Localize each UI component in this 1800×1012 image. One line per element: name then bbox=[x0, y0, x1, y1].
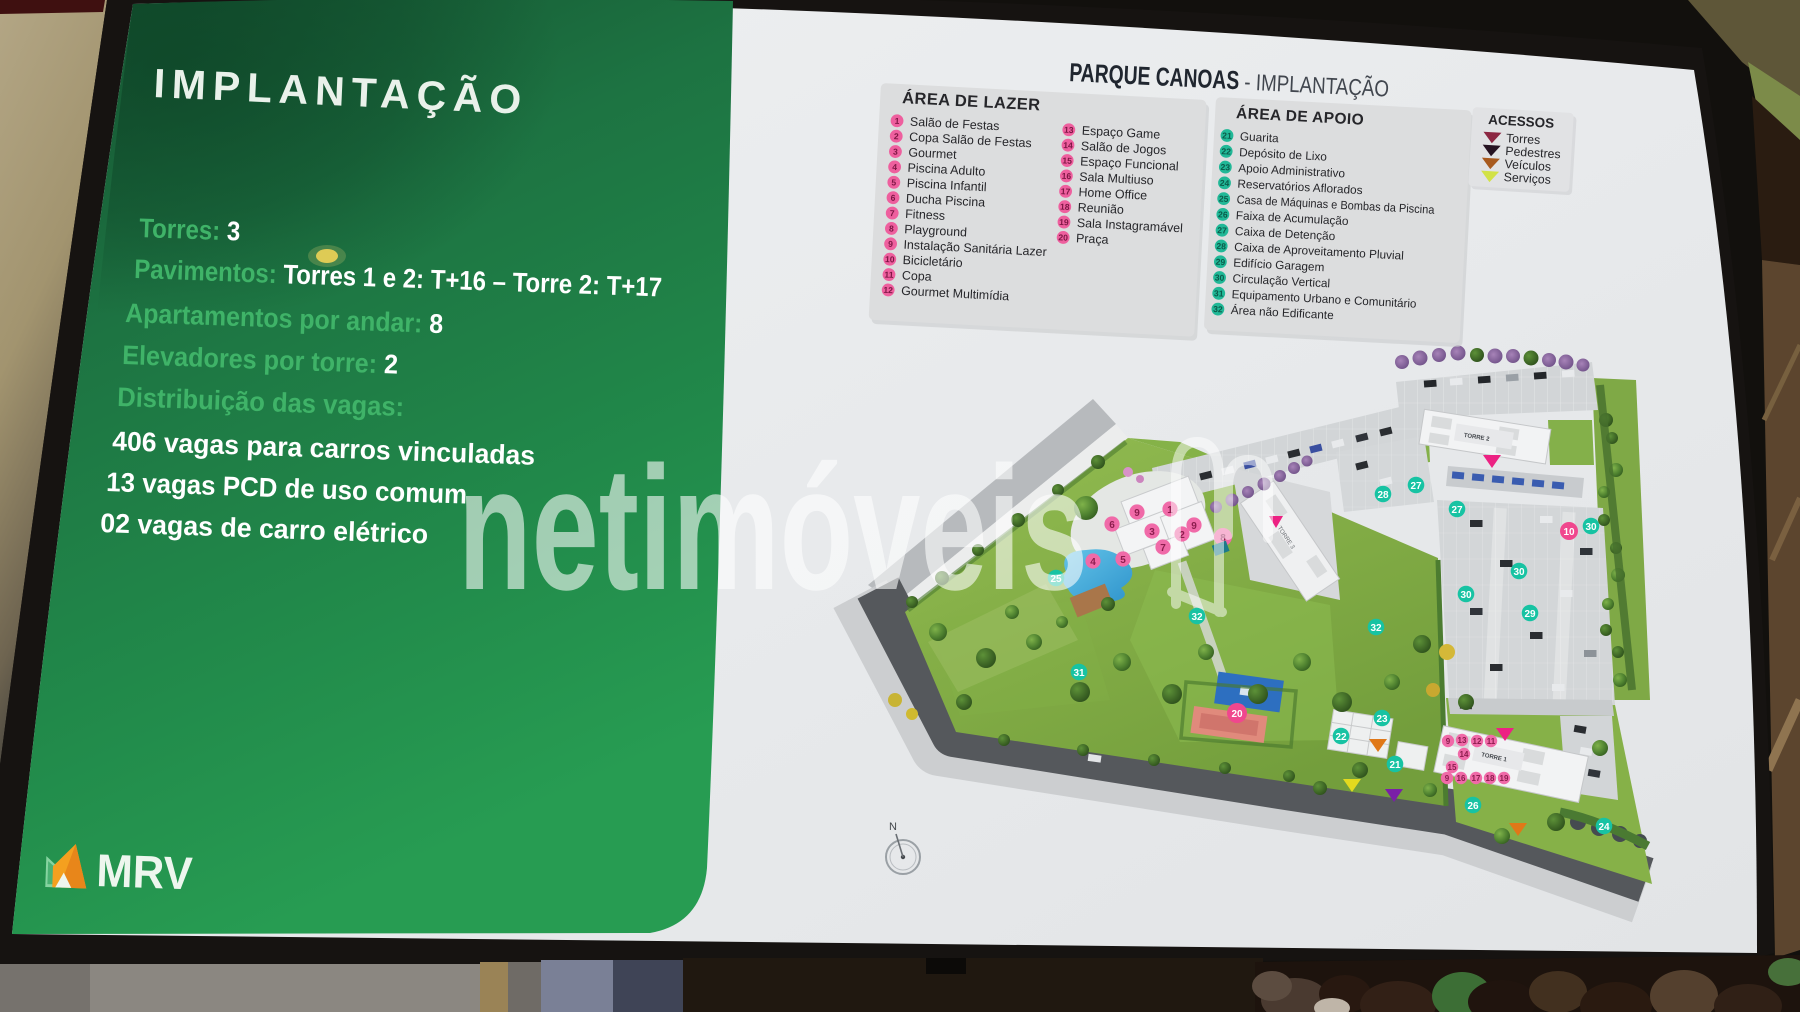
svg-text:27: 27 bbox=[1217, 225, 1227, 235]
svg-text:10: 10 bbox=[885, 254, 895, 264]
svg-text:31: 31 bbox=[1073, 668, 1085, 679]
svg-text:21: 21 bbox=[1389, 760, 1401, 771]
svg-text:31: 31 bbox=[1214, 288, 1224, 298]
svg-text:Serviços: Serviços bbox=[1503, 170, 1551, 187]
svg-text:4: 4 bbox=[1090, 557, 1096, 568]
svg-text:Reunião: Reunião bbox=[1077, 200, 1124, 216]
svg-text:21: 21 bbox=[1222, 130, 1232, 140]
svg-text:25: 25 bbox=[1219, 193, 1229, 203]
svg-text:29: 29 bbox=[1215, 257, 1225, 267]
svg-text:5: 5 bbox=[891, 177, 897, 187]
svg-text:26: 26 bbox=[1218, 209, 1228, 219]
svg-text:9: 9 bbox=[1445, 774, 1450, 783]
svg-text:4: 4 bbox=[892, 162, 898, 172]
svg-text:6: 6 bbox=[1109, 520, 1115, 531]
svg-text:15: 15 bbox=[1062, 155, 1072, 165]
svg-text:12: 12 bbox=[883, 285, 893, 295]
svg-text:20: 20 bbox=[1231, 709, 1243, 720]
svg-text:28: 28 bbox=[1377, 490, 1389, 501]
svg-text:13: 13 bbox=[1064, 125, 1074, 135]
svg-text:27: 27 bbox=[1410, 481, 1422, 492]
svg-text:17: 17 bbox=[1472, 774, 1481, 783]
svg-text:10: 10 bbox=[1563, 527, 1575, 538]
svg-text:11: 11 bbox=[1487, 737, 1496, 746]
svg-text:6: 6 bbox=[890, 193, 896, 203]
svg-text:7: 7 bbox=[1160, 543, 1166, 554]
svg-text:22: 22 bbox=[1221, 146, 1231, 156]
svg-text:12: 12 bbox=[1473, 737, 1482, 746]
svg-text:16: 16 bbox=[1061, 171, 1071, 181]
svg-text:19: 19 bbox=[1500, 774, 1509, 783]
svg-text:24: 24 bbox=[1598, 822, 1610, 833]
svg-text:23: 23 bbox=[1220, 162, 1230, 172]
svg-text:3: 3 bbox=[1149, 527, 1155, 538]
svg-text:32: 32 bbox=[1191, 612, 1203, 623]
svg-text:8: 8 bbox=[889, 223, 895, 233]
svg-text:11: 11 bbox=[884, 269, 894, 279]
svg-text:9: 9 bbox=[1191, 521, 1197, 532]
svg-text:23: 23 bbox=[1376, 714, 1388, 725]
svg-text:9: 9 bbox=[1134, 508, 1140, 519]
svg-text:16: 16 bbox=[1457, 774, 1466, 783]
svg-text:26: 26 bbox=[1467, 801, 1479, 812]
svg-text:27: 27 bbox=[1451, 505, 1463, 516]
svg-text:N: N bbox=[889, 821, 897, 833]
svg-text:1: 1 bbox=[894, 116, 900, 126]
svg-text:30: 30 bbox=[1585, 522, 1597, 533]
svg-text:MRV: MRV bbox=[96, 844, 194, 899]
svg-text:18: 18 bbox=[1060, 202, 1070, 212]
svg-text:9: 9 bbox=[1446, 737, 1451, 746]
svg-text:Torres: 3: Torres: 3 bbox=[139, 213, 241, 247]
svg-text:Guarita: Guarita bbox=[1240, 129, 1280, 145]
svg-text:32: 32 bbox=[1213, 304, 1223, 314]
svg-text:30: 30 bbox=[1215, 272, 1225, 282]
svg-text:20: 20 bbox=[1058, 232, 1068, 242]
svg-text:9: 9 bbox=[888, 239, 894, 249]
svg-text:32: 32 bbox=[1370, 623, 1382, 634]
svg-text:5: 5 bbox=[1120, 555, 1126, 566]
svg-text:netimóveis: netimóveis bbox=[458, 431, 1088, 627]
svg-text:3: 3 bbox=[893, 147, 899, 157]
svg-text:19: 19 bbox=[1059, 217, 1069, 227]
svg-text:14: 14 bbox=[1063, 140, 1073, 150]
svg-text:28: 28 bbox=[1216, 241, 1226, 251]
svg-text:14: 14 bbox=[1460, 750, 1469, 759]
svg-text:30: 30 bbox=[1513, 567, 1525, 578]
svg-text:Fitness: Fitness bbox=[905, 207, 946, 223]
svg-text:18: 18 bbox=[1486, 774, 1495, 783]
svg-text:13: 13 bbox=[1458, 736, 1467, 745]
svg-text:17: 17 bbox=[1061, 186, 1071, 196]
svg-text:Praça: Praça bbox=[1076, 231, 1109, 247]
svg-text:29: 29 bbox=[1524, 609, 1536, 620]
svg-text:7: 7 bbox=[890, 208, 896, 218]
svg-text:2: 2 bbox=[894, 131, 900, 141]
svg-text:22: 22 bbox=[1335, 732, 1347, 743]
svg-text:30: 30 bbox=[1460, 590, 1472, 601]
svg-text:Copa: Copa bbox=[902, 268, 932, 284]
svg-text:15: 15 bbox=[1448, 763, 1457, 772]
svg-text:Gourmet: Gourmet bbox=[908, 145, 957, 162]
svg-text:24: 24 bbox=[1219, 178, 1229, 188]
